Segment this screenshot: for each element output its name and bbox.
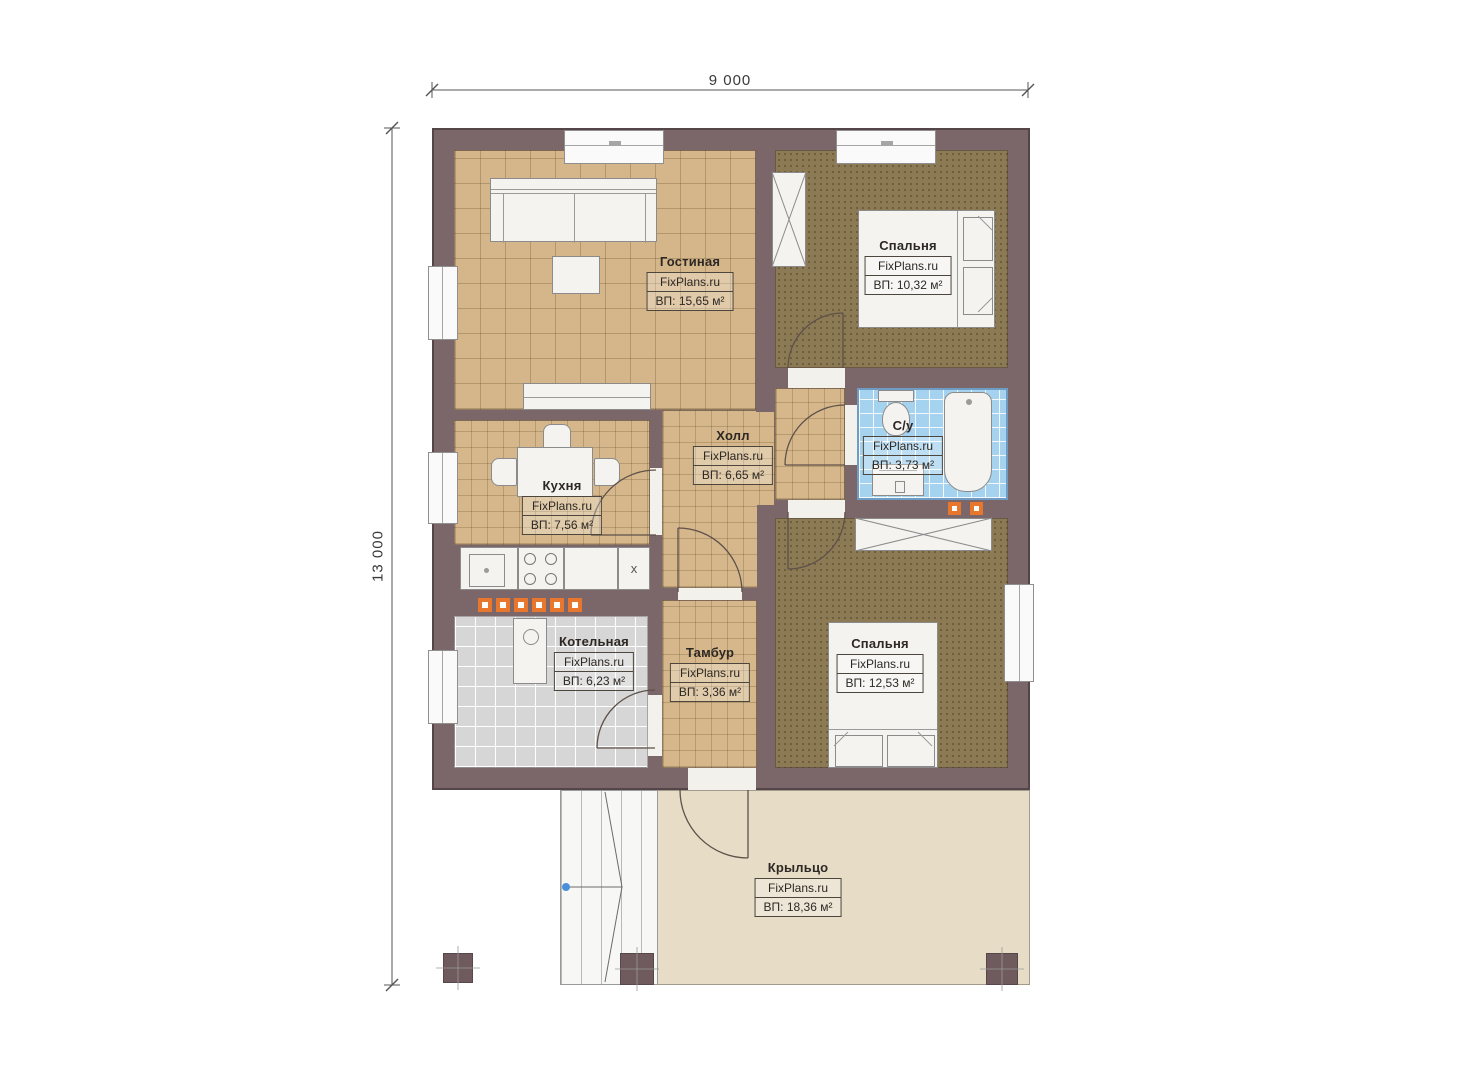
- room-name-bedroom-bottom: Спальня: [837, 636, 924, 651]
- hall-corridor-floor: [775, 388, 845, 500]
- floor-plan-canvas: 9 000 13 000: [0, 0, 1474, 1080]
- window-bedroom-bottom-right: [1004, 584, 1034, 682]
- room-area-kitchen: ВП: 7,56 м²: [522, 516, 602, 535]
- wall-living-kitchen: [454, 410, 650, 420]
- sofa: [490, 178, 657, 242]
- room-area-hall: ВП: 6,65 м²: [693, 466, 773, 485]
- flue-block-bath-2: [970, 502, 983, 515]
- window-living-top: [564, 130, 664, 164]
- dimension-width-label: 9 000: [709, 72, 752, 89]
- watermark-bathroom: FixPlans.ru: [863, 436, 943, 456]
- kitchen-stove: [518, 547, 564, 590]
- tv-stand: [523, 383, 651, 410]
- label-living-room: Гостиная FixPlans.ru ВП: 15,65 м²: [647, 254, 734, 311]
- door-opening-kitchen: [650, 468, 662, 535]
- label-bedroom-top: Спальня FixPlans.ru ВП: 10,32 м²: [865, 238, 952, 295]
- bathtub: [944, 392, 992, 492]
- watermark-bedroom-top: FixPlans.ru: [865, 256, 952, 276]
- window-bedroom-top: [836, 130, 936, 164]
- room-name-living: Гостиная: [647, 254, 734, 269]
- door-opening-bedroom-bottom: [788, 500, 845, 518]
- door-opening-entrance: [688, 768, 756, 790]
- label-kitchen: Кухня FixPlans.ru ВП: 7,56 м²: [522, 478, 602, 535]
- porch-post-middle: [620, 953, 654, 985]
- room-name-kitchen: Кухня: [522, 478, 602, 493]
- flue-block-6: [568, 598, 582, 612]
- watermark-tambour: FixPlans.ru: [670, 663, 750, 683]
- label-bedroom-bottom: Спальня FixPlans.ru ВП: 12,53 м²: [837, 636, 924, 693]
- room-name-porch: Крыльцо: [755, 860, 842, 875]
- door-opening-bathroom: [845, 405, 857, 465]
- wardrobe-bedroom-bottom: [855, 518, 992, 551]
- label-tambour: Тамбур FixPlans.ru ВП: 3,36 м²: [670, 645, 750, 702]
- label-porch: Крыльцо FixPlans.ru ВП: 18,36 м²: [755, 860, 842, 917]
- watermark-bedroom-bottom: FixPlans.ru: [837, 654, 924, 674]
- room-name-bedroom-top: Спальня: [865, 238, 952, 253]
- watermark-porch: FixPlans.ru: [755, 878, 842, 898]
- window-boiler-left: [428, 650, 458, 724]
- door-opening-boiler: [648, 695, 662, 756]
- porch-post-right: [986, 953, 1018, 985]
- room-name-bathroom: С/у: [863, 418, 943, 433]
- flue-block-5: [550, 598, 564, 612]
- door-opening-bedroom-top: [788, 368, 845, 388]
- dimension-depth-label: 13 000: [370, 530, 387, 582]
- room-name-tambour: Тамбур: [670, 645, 750, 660]
- room-name-boiler: Котельная: [554, 634, 634, 649]
- door-opening-hall-tambour: [678, 588, 742, 600]
- kitchen-fridge: x: [618, 547, 650, 590]
- label-bathroom: С/у FixPlans.ru ВП: 3,73 м²: [863, 418, 943, 475]
- flue-block-3: [514, 598, 528, 612]
- fridge-mark: x: [631, 561, 638, 576]
- flue-block-1: [478, 598, 492, 612]
- window-living-left: [428, 266, 458, 340]
- watermark-boiler: FixPlans.ru: [554, 652, 634, 672]
- flue-block-4: [532, 598, 546, 612]
- flue-block-2: [496, 598, 510, 612]
- kitchen-counter: [564, 547, 618, 590]
- room-area-bedroom-bottom: ВП: 12,53 м²: [837, 674, 924, 693]
- boiler-unit: [513, 618, 547, 684]
- room-area-porch: ВП: 18,36 м²: [755, 898, 842, 917]
- window-kitchen-left: [428, 452, 458, 524]
- wardrobe-bedroom-top: [772, 172, 806, 267]
- room-area-tambour: ВП: 3,36 м²: [670, 683, 750, 702]
- room-area-living: ВП: 15,65 м²: [647, 292, 734, 311]
- flue-block-bath-1: [948, 502, 961, 515]
- label-boiler-room: Котельная FixPlans.ru ВП: 6,23 м²: [554, 634, 634, 691]
- toilet-tank: [878, 390, 914, 402]
- porch-post-left: [443, 953, 473, 983]
- wall-tambour-bedroom-bottom: [757, 505, 775, 768]
- kitchen-chair-left: [491, 458, 517, 486]
- coffee-table: [552, 256, 600, 294]
- room-area-bathroom: ВП: 3,73 м²: [863, 456, 943, 475]
- room-area-boiler: ВП: 6,23 м²: [554, 672, 634, 691]
- kitchen-sink-cabinet: [460, 547, 518, 590]
- watermark-living: FixPlans.ru: [647, 272, 734, 292]
- watermark-kitchen: FixPlans.ru: [522, 496, 602, 516]
- label-hall: Холл FixPlans.ru ВП: 6,65 м²: [693, 428, 773, 485]
- watermark-hall: FixPlans.ru: [693, 446, 773, 466]
- room-area-bedroom-top: ВП: 10,32 м²: [865, 276, 952, 295]
- room-name-hall: Холл: [693, 428, 773, 443]
